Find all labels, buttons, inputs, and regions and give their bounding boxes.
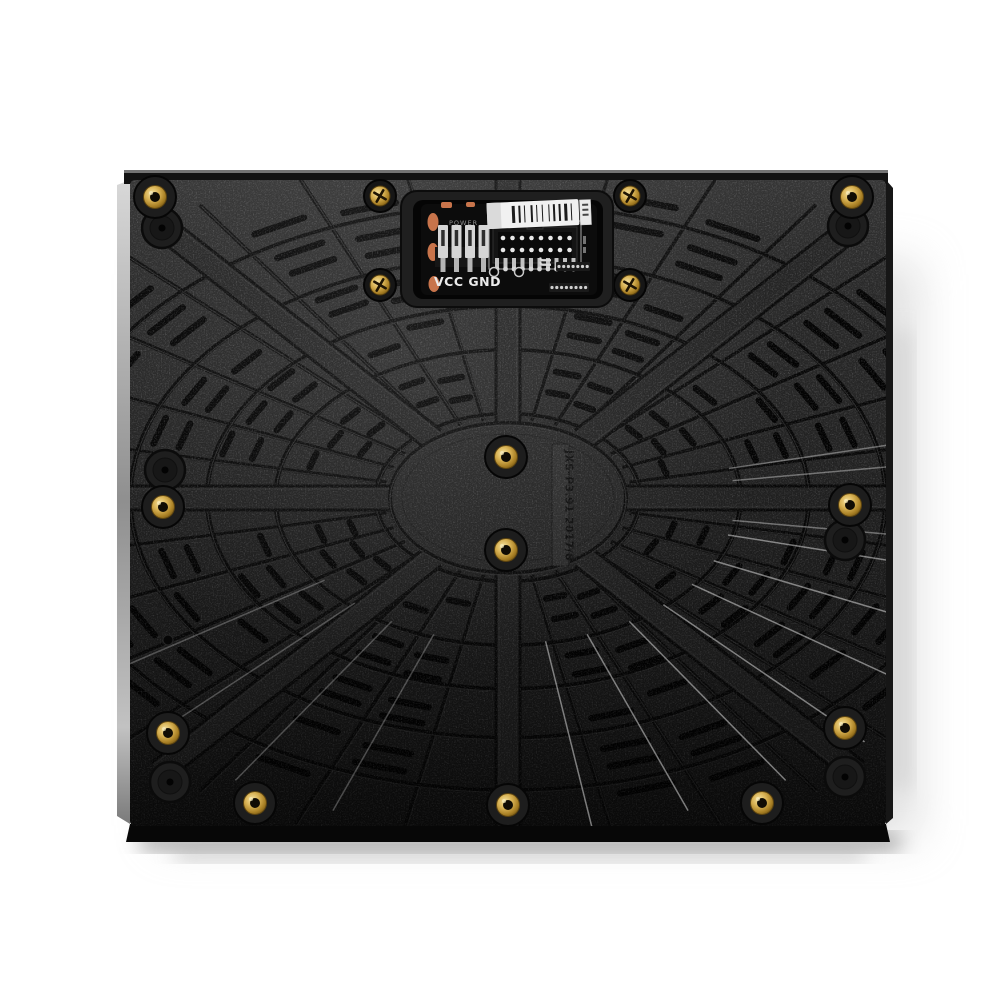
led-module-back-photo: JXS-P3.91 2017/8 POWER VCC GND [0, 0, 1000, 1000]
brass-insert [142, 486, 184, 528]
solder-blob [537, 267, 542, 272]
solder-blob [529, 267, 534, 272]
solder-blob [546, 267, 551, 272]
phillips-screw [364, 180, 396, 212]
panel-left-edge [117, 180, 130, 824]
power-pin-slot [482, 230, 486, 246]
phillips-screw [364, 269, 396, 301]
brass-insert [485, 436, 527, 478]
power-pin-lead [441, 258, 446, 272]
jj-marking: JJ [539, 257, 553, 267]
brass-insert [487, 784, 529, 826]
small-hole [163, 635, 173, 645]
power-pin-slot [468, 230, 472, 246]
brass-insert [234, 782, 276, 824]
phillips-screw [614, 269, 646, 301]
barcode-side-marks [582, 204, 589, 216]
phillips-screw [614, 180, 646, 212]
brass-insert [134, 176, 176, 218]
barcode-label [486, 199, 591, 230]
brass-insert [485, 529, 527, 571]
power-pin-lead [454, 258, 459, 272]
barcode-side-tab [579, 200, 591, 225]
blank-boss [150, 762, 190, 802]
power-pin-slot [455, 230, 459, 246]
product-photo: JXS-P3.91 2017/8 POWER VCC GND [0, 0, 1000, 1000]
power-pin-lead [468, 258, 473, 272]
power-pin-lead [481, 258, 486, 272]
blank-boss [825, 757, 865, 797]
pcb-module: POWER VCC GND JJ [401, 191, 613, 307]
brass-insert [831, 176, 873, 218]
power-pin-slot [441, 230, 445, 246]
blank-boss [145, 450, 185, 490]
brass-insert [824, 707, 866, 749]
brass-insert [741, 782, 783, 824]
brass-insert [829, 484, 871, 526]
brass-insert [147, 712, 189, 754]
solder-blob [503, 267, 508, 272]
panel-right-edge [886, 180, 893, 824]
